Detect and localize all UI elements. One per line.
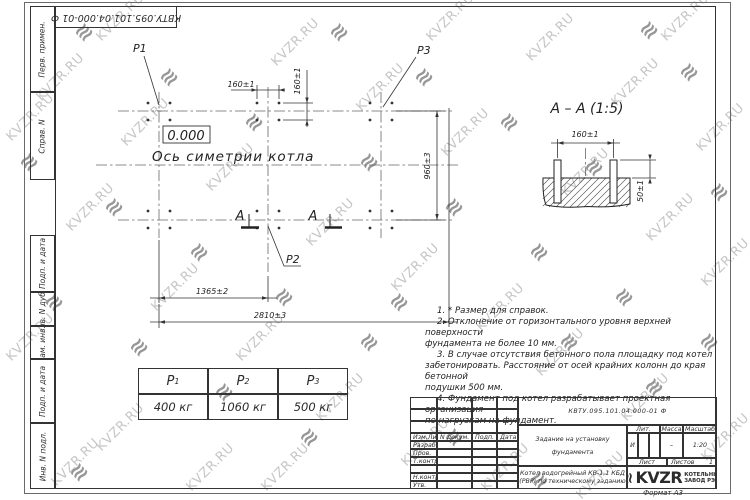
dim-1365: 1365±2 [196, 287, 228, 296]
kvzr-logo-subtitle: КОТЕЛЬНЫЙ ЗАВОД РЭП [684, 472, 717, 484]
section-view-title: А – А (1:5) [550, 101, 624, 117]
sig-cell [497, 457, 518, 465]
note-line: 3. В случае отсутствия бетонного пола пл… [425, 350, 720, 361]
section-letter-right: А [308, 209, 318, 224]
doc-number: КВТУ.095.101.04.000-01 Ф [518, 397, 717, 425]
revision-cell [410, 409, 437, 421]
load-value-p2: 1060 кг [208, 394, 278, 420]
sheet-label: Лист [627, 458, 667, 466]
drawing-sheet: KVZR.RUKVZR.RUKVZR.RUKVZR.RUKVZR.RUKVZR.… [0, 0, 750, 500]
lit-value: И [627, 433, 638, 458]
sig-cell [497, 441, 518, 449]
note-line: подушки 500 мм. [425, 383, 720, 394]
section-view-drawing [543, 160, 630, 207]
sig-cell [437, 449, 472, 457]
boiler-symmetry-axis-label: Ось симетрии котла [152, 149, 314, 165]
lit-cell [649, 433, 660, 458]
dim-160-top: 160±1 [227, 80, 254, 89]
anchor-bolt-right [610, 160, 617, 203]
section-dim-160: 160±1 [571, 130, 598, 139]
margin-box-sprav-n: Справ. N [30, 92, 55, 180]
margin-box-inv-dubl: Инв. N дубл. [30, 292, 55, 326]
section-letter-left: А [235, 209, 245, 224]
sig-cell [497, 449, 518, 457]
sheets-cell: Листов 1 [667, 458, 717, 466]
revision-cell [497, 397, 518, 409]
revision-cell [437, 409, 472, 421]
row-razrab: Разраб. [410, 441, 437, 449]
sig-cell [497, 473, 518, 481]
row-nkontr: Н.контр. [410, 473, 437, 481]
load-value-p3: 500 кг [278, 394, 348, 420]
sig-cell [437, 441, 472, 449]
margin-box-perv-primen: Перв. примен. [30, 6, 55, 92]
margin-box-inv-podl: Инв. N подл. [30, 423, 55, 489]
row-blank [410, 465, 437, 473]
lit-cell [638, 433, 649, 458]
mass-header: Масса [660, 425, 683, 433]
load-point-p2-label: P2 [286, 253, 300, 266]
sig-cell [437, 481, 472, 489]
revision-cell [410, 421, 437, 433]
mass-value: – [660, 433, 683, 458]
sig-cell [437, 465, 472, 473]
sig-cell [472, 449, 497, 457]
note-line: 1. * Размер для справок. [425, 306, 720, 317]
dim-960: 960±3 [423, 152, 432, 179]
section-cut-marks [241, 214, 342, 228]
load-table-header-p1: P1 [138, 368, 208, 394]
kvzr-logo-icon: ≋ [627, 471, 636, 484]
sig-cell [497, 465, 518, 473]
top-stamp-doc-number: КВТУ.095.101.04.000-01 Ф [51, 12, 181, 23]
revision-cell [497, 421, 518, 433]
revision-cell [437, 397, 472, 409]
margin-box-vzam-inv: Взам. инв. N [30, 326, 55, 359]
anchor-bolt-left [554, 160, 561, 203]
kvzr-logo-text: KVZR [636, 468, 683, 487]
sig-cell [497, 481, 518, 489]
sig-cell [437, 457, 472, 465]
sig-cell [472, 473, 497, 481]
sig-cell [472, 457, 497, 465]
top-rotated-stamp: КВТУ.095.101.04.000-01 Ф [55, 6, 177, 28]
load-point-p3-label: P3 [417, 44, 431, 57]
section-dim-50: 50±1 [636, 180, 645, 202]
lit-header: Лит. [627, 425, 660, 433]
revision-cell [410, 397, 437, 409]
col-header-data: Дата [497, 433, 518, 441]
margin-box-podp-data-2: Подп. и дата [30, 359, 55, 423]
sig-cell [472, 465, 497, 473]
note-line: фундамента не более 10 мм. [425, 339, 720, 350]
row-prov: Пров. [410, 449, 437, 457]
row-tkontr: Т.контр. [410, 457, 437, 465]
col-header-podp: Подп. [472, 433, 497, 441]
note-line: забетонировать. Расстояние от осей крайн… [425, 361, 720, 383]
col-header-n-dokum: N докум. [437, 433, 472, 441]
center-lines [96, 87, 586, 272]
format-label: Формат А3 [640, 489, 686, 497]
sig-cell [437, 473, 472, 481]
scale-value: 1:20 [683, 433, 717, 458]
elevation-mark: 0.000 [167, 129, 204, 144]
company-logo-cell: ≋ KVZR КОТЕЛЬНЫЙ ЗАВОД РЭП [627, 466, 717, 489]
revision-cell [472, 421, 497, 433]
margin-box-podp-data-1: Подп. и дата [30, 235, 55, 292]
note-line: 2. Отклонение от горизонтального уровня … [425, 317, 720, 339]
load-table-header-p3: P3 [278, 368, 348, 394]
load-table: P1 P2 P3 400 кг 1060 кг 500 кг [138, 368, 348, 420]
revision-cell [437, 421, 472, 433]
sig-cell [472, 481, 497, 489]
title-block: Изм.Лист N докум. Подп. Дата Разраб. Про… [410, 397, 717, 489]
product-description: Котел водогрейный КВ-1,1 КБД (РВР) по те… [518, 466, 627, 489]
revision-cell [472, 397, 497, 409]
revision-cell [472, 409, 497, 421]
dim-160-vertical: 160±1 [293, 67, 302, 94]
anchor-bolt-points [147, 102, 394, 230]
load-value-p1: 400 кг [138, 394, 208, 420]
drawing-title: Задание на установку фундамента [518, 425, 627, 466]
sig-cell [472, 441, 497, 449]
dim-2810: 2810±3 [254, 311, 286, 320]
load-point-p1-label: P1 [133, 42, 147, 55]
scale-header: Масштаб [683, 425, 717, 433]
sheets-count: 1 [709, 459, 713, 466]
revision-cell [497, 409, 518, 421]
col-header-izm-list: Изм.Лист [410, 433, 437, 441]
load-table-header-p2: P2 [208, 368, 278, 394]
row-utv: Утв. [410, 481, 437, 489]
